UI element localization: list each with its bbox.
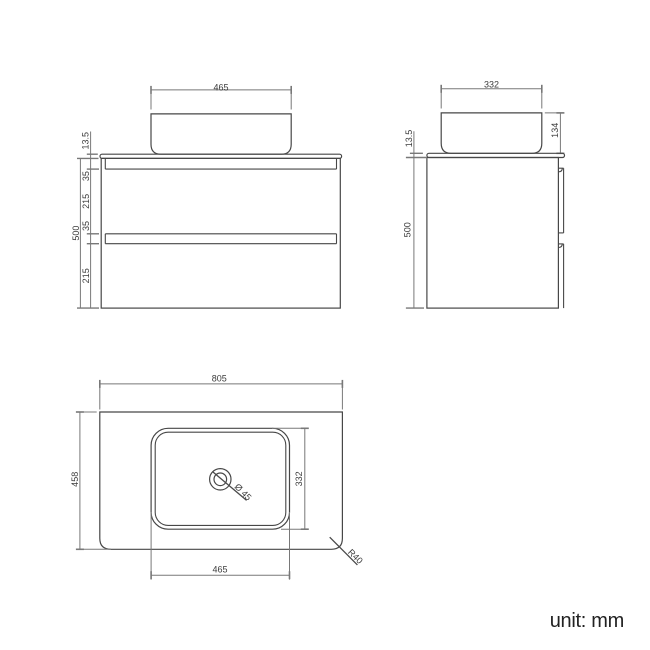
svg-text:500: 500 — [403, 222, 413, 237]
svg-text:35: 35 — [81, 171, 91, 181]
svg-text:465: 465 — [213, 82, 228, 92]
svg-text:458: 458 — [70, 472, 80, 487]
svg-text:unit: mm: unit: mm — [550, 610, 624, 632]
svg-text:215: 215 — [81, 194, 91, 209]
svg-text:215: 215 — [81, 268, 91, 283]
svg-text:805: 805 — [212, 373, 227, 383]
svg-text:465: 465 — [212, 565, 227, 575]
svg-text:13.5: 13.5 — [81, 132, 91, 150]
svg-text:35: 35 — [81, 221, 91, 231]
svg-text:500: 500 — [71, 226, 81, 241]
svg-text:134: 134 — [550, 123, 560, 138]
svg-text:332: 332 — [294, 471, 304, 486]
svg-text:332: 332 — [484, 79, 499, 89]
svg-text:13.5: 13.5 — [404, 130, 414, 148]
svg-text:R40: R40 — [346, 547, 365, 566]
